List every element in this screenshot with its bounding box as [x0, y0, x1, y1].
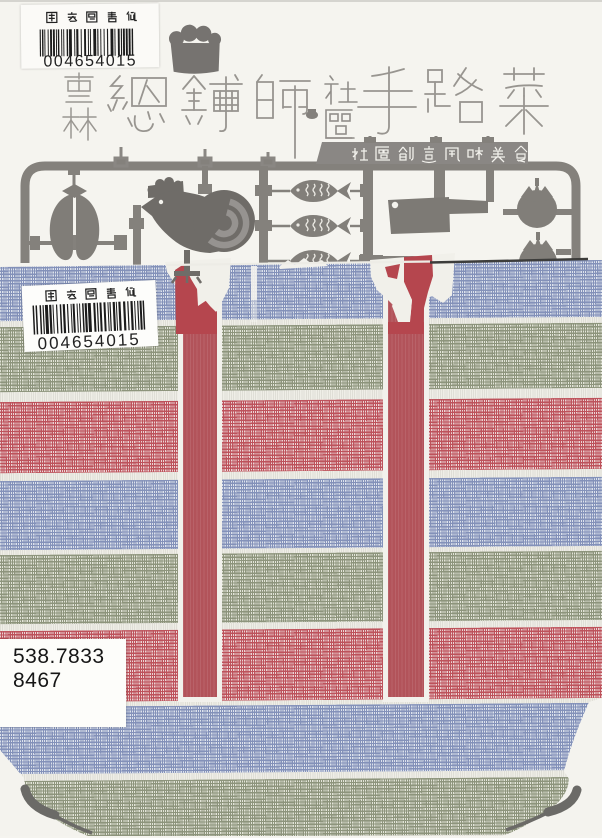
- svg-text:004654015: 004654015: [43, 53, 137, 69]
